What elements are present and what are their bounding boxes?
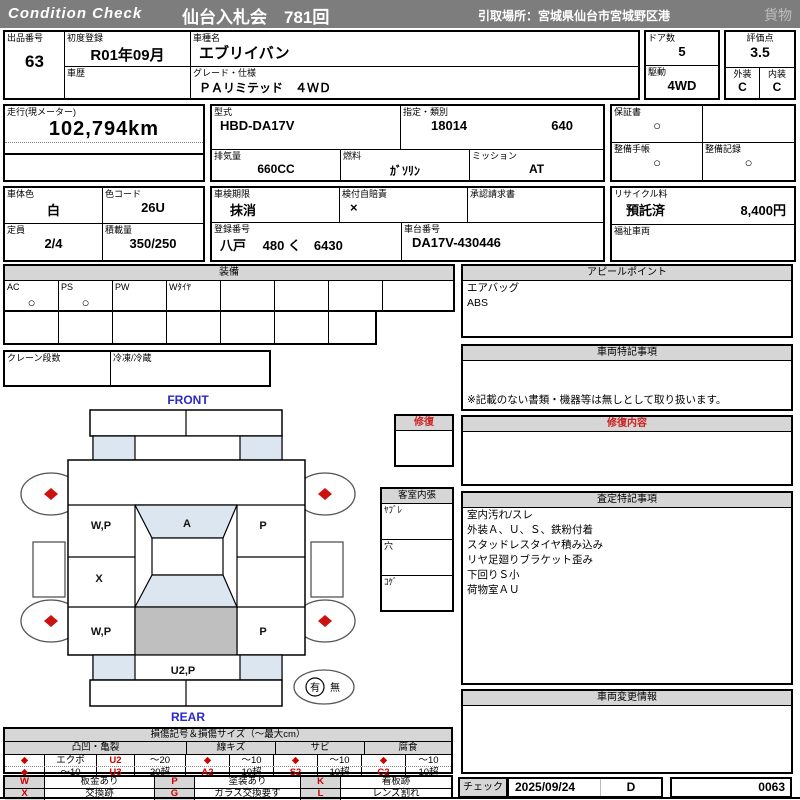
grade-label: グレード・仕様: [191, 67, 638, 79]
warranty-value: ○: [612, 118, 702, 133]
equipment-label: PW: [113, 281, 166, 293]
legend-symbol: ◆: [5, 755, 45, 766]
legend-size: ～10: [230, 755, 274, 766]
rear-right-corner-panel: [240, 655, 282, 680]
transmission-value: AT: [470, 162, 603, 176]
body-color-label: 車体色: [5, 188, 102, 200]
equipment-cell: [329, 281, 383, 311]
load-label: 積載量: [103, 224, 203, 236]
score-label: 評価点: [726, 32, 794, 44]
appeal-points-title: アピールポイント: [463, 266, 791, 281]
trim-row-label: ﾔﾌﾞﾚ: [382, 504, 452, 516]
insurance-value: ×: [340, 200, 467, 215]
roof: [152, 538, 223, 575]
maintenance-record-value: ○: [703, 155, 794, 170]
body-color-cell: 車体色 白: [5, 188, 103, 223]
history-label: 車歴: [65, 67, 190, 79]
legend-desc: エクボ: [45, 755, 97, 766]
code-desc: 看板跡: [341, 777, 451, 788]
equipment-cell-ac: AC○: [5, 281, 59, 311]
equipment-cell: [329, 312, 375, 343]
repair-mini-box: 修復: [394, 414, 454, 467]
spare-no-label: 無: [330, 681, 340, 694]
exterior-label: 外装: [726, 68, 759, 80]
type-number-value: 18014: [431, 118, 467, 133]
interior-value: C: [760, 80, 794, 94]
trim-row-burn: ｺｹﾞ: [382, 576, 452, 611]
transmission-label: ミッション: [470, 150, 603, 162]
pickup-location: 引取場所：宮城県仙台市宮城野区港: [478, 7, 670, 24]
mark-left-front-door: W,P: [91, 520, 111, 532]
rear-label: REAR: [171, 710, 205, 724]
page-bottom-rule: [0, 797, 800, 799]
welfare-label: 福祉車両: [612, 225, 794, 237]
displacement-value: 660CC: [212, 162, 340, 176]
check-number-value: 0063: [670, 777, 792, 798]
check-grade-value: D: [601, 779, 661, 796]
first-registration-value: R01年09月: [65, 44, 190, 65]
registration-number-value: 八戸 480 く 6430: [212, 235, 401, 254]
recycle-status-value: 預託済: [626, 200, 665, 219]
body-color-value: 白: [5, 200, 102, 219]
model-code-value: HBD-DA17V: [212, 118, 400, 133]
trim-row-label: ｺｹﾞ: [382, 576, 452, 588]
assessment-line: 下回りＳ小: [463, 568, 791, 583]
mark-rear-gate: U2,P: [171, 665, 195, 677]
displacement-label: 排気量: [212, 150, 340, 162]
damage-legend-table: 損傷記号＆損傷サイズ（～最大cm） 凸凹・亀裂 線キズ サビ 腐食 ◆ エクボ …: [3, 727, 453, 774]
assessment-notes-box: 査定特記事項 室内汚れ/スレ 外装Ａ、Ｕ、Ｓ、鉄粉付着 スタッドレスタイヤ積み込…: [461, 491, 793, 685]
load-cell: 積載量 350/250: [103, 224, 203, 261]
capacity-value: 2/4: [5, 236, 102, 251]
chassis-number-label: 車台番号: [402, 223, 603, 235]
color-code-value: 26U: [103, 200, 203, 215]
repair-mini-title: 修復: [396, 416, 452, 431]
code-key: W: [5, 777, 45, 788]
equipment-cell-wtire: Wﾀｲﾔ: [167, 281, 221, 311]
lot-number-cell: 出品番号 63: [5, 32, 65, 98]
approval-label: 承認請求書: [468, 188, 603, 200]
history-cell: 車歴: [65, 67, 190, 79]
mileage-value: 102,794km: [5, 118, 203, 141]
exterior-value: C: [726, 80, 759, 94]
equipment-label: Wﾀｲﾔ: [167, 281, 220, 293]
recycle-cell: リサイクル料 預託済 8,400円: [612, 188, 794, 225]
legend-code: U2: [97, 755, 135, 766]
fuel-value: ｶﾞｿﾘﾝ: [341, 162, 469, 179]
color-capacity-table: 車体色 白 色コード 26U 定員 2/4 積載量 350/250: [3, 186, 205, 262]
left-running-board: [33, 542, 65, 597]
mileage-label: 走行(現メーター): [5, 106, 203, 118]
doors-drive-table: ドア数 5 駆動 4WD: [644, 30, 720, 100]
model-code-label: 型式: [212, 106, 400, 118]
exterior-cell: 外装 C: [726, 68, 760, 99]
mileage-sub-box: [5, 153, 203, 183]
equipment-table: 装備 AC○ PS○ PW Wﾀｲﾔ: [3, 264, 455, 312]
assessment-line: 外装Ａ、Ｕ、Ｓ、鉄粉付着: [463, 523, 791, 538]
registration-table: 車検期限 抹消 検付自賠責 × 承認請求書 登録番号 八戸 480 く 6430…: [210, 186, 605, 262]
lot-number-label: 出品番号: [5, 32, 64, 44]
recycle-label: リサイクル料: [612, 188, 794, 200]
registration-number-label: 登録番号: [212, 223, 401, 235]
check-date-value: 2025/09/24: [509, 779, 601, 796]
equipment-row2: [3, 310, 377, 345]
assessment-line: リヤ足廻りブラケット歪み: [463, 553, 791, 568]
check-label-cell: チェック: [458, 777, 508, 798]
maintenance-book-cell: 整備手帳 ○: [612, 143, 703, 181]
blank-cell: [703, 106, 794, 142]
doors-cell: ドア数 5: [646, 32, 718, 66]
type-class-label: 指定・類別: [401, 106, 603, 118]
type-class-cell: 指定・類別 18014 640: [401, 106, 603, 149]
doors-value: 5: [646, 44, 718, 59]
damage-codes-table: W 板金あり P 塗装あり K 看板跡 X 交換跡 G ガラス交換要す L レン…: [3, 775, 453, 799]
front-right-corner-panel: [240, 436, 282, 460]
score-cell: 評価点 3.5: [726, 32, 794, 68]
equipment-label: AC: [5, 281, 58, 293]
code-desc: 塗装あり: [195, 777, 301, 788]
drive-value: 4WD: [646, 78, 718, 93]
equipment-value: ○: [5, 295, 58, 310]
rear-window: [135, 575, 237, 607]
equipment-cell: [5, 312, 59, 343]
first-registration-cell: 初度登録 R01年09月: [65, 32, 190, 67]
change-info-title: 車両変更情報: [463, 691, 791, 706]
interior-trim-table: 客室内張 ﾔﾌﾞﾚ 穴 ｺｹﾞ: [380, 487, 454, 612]
vehicle-notes-title: 車両特記事項: [463, 346, 791, 361]
chassis-number-value: DA17V-430446: [402, 235, 603, 250]
legend-group-corrosion: 腐食: [365, 742, 451, 755]
equipment-cell-ps: PS○: [59, 281, 113, 311]
assessment-line: スタッドレスタイヤ積み込み: [463, 538, 791, 553]
lot-model-table: 出品番号 63 初度登録 R01年09月 車歴 車種名 エブリイバン グレード・…: [3, 30, 640, 100]
doors-label: ドア数: [646, 32, 718, 44]
inspection-cell: 車検期限 抹消: [212, 188, 340, 222]
legend-group-scratch: 線キズ: [187, 742, 276, 755]
lot-number-value: 63: [5, 52, 64, 72]
capacity-cell: 定員 2/4: [5, 224, 103, 261]
fuel-cell: 燃料 ｶﾞｿﾘﾝ: [341, 150, 470, 181]
trim-row-label: 穴: [382, 540, 452, 552]
legend-group-rust: サビ: [276, 742, 365, 755]
equipment-label: PS: [59, 281, 112, 293]
legend-symbol: ◆: [274, 755, 318, 766]
trim-row-hole: 穴: [382, 540, 452, 576]
equipment-cell: [221, 312, 275, 343]
equipment-cell: [275, 312, 329, 343]
maintenance-record-label: 整備記録: [703, 143, 794, 155]
repair-details-box: 修復内容: [461, 415, 793, 486]
maintenance-book-label: 整備手帳: [612, 143, 702, 155]
spare-yes-label: 有: [310, 681, 320, 694]
equipment-cell: [383, 281, 436, 311]
capacity-label: 定員: [5, 224, 102, 236]
code-desc: 板金あり: [45, 777, 155, 788]
repair-details-title: 修復内容: [463, 417, 791, 432]
vehicle-notes-disclaimer: ※記載のない書類・機器等は無しとして取り扱います。: [467, 392, 726, 407]
warranty-cell: 保証書 ○: [612, 106, 703, 142]
model-name-value: エブリイバン: [191, 42, 638, 63]
equipment-cell: [113, 312, 167, 343]
front-left-corner-panel: [93, 436, 135, 460]
fridge-cell: 冷凍/冷蔵: [111, 352, 269, 385]
mark-left-slide-door: X: [95, 573, 103, 585]
assessment-line: 荷物室ＡＵ: [463, 583, 791, 598]
equipment-cell-pw: PW: [113, 281, 167, 311]
assessment-notes-title: 査定特記事項: [463, 493, 791, 508]
displacement-cell: 排気量 660CC: [212, 150, 341, 181]
interior-label: 内装: [760, 68, 794, 80]
brand-logo: Condition Check: [8, 5, 142, 22]
mileage-box: 走行(現メーター) 102,794km: [3, 104, 205, 182]
legend-group-dent: 凸凹・亀裂: [5, 742, 187, 755]
trim-row-tear: ﾔﾌﾞﾚ: [382, 504, 452, 540]
legend-size: ～10: [318, 755, 362, 766]
model-name-cell: 車種名 エブリイバン: [191, 32, 638, 67]
code-key: P: [155, 777, 195, 788]
fridge-label: 冷凍/冷蔵: [111, 352, 269, 364]
recycle-fee-value: 8,400円: [740, 200, 786, 219]
score-table: 評価点 3.5 外装 C 内装 C: [724, 30, 796, 100]
mark-left-rear-quarter: W,P: [91, 626, 111, 638]
right-running-board: [311, 542, 343, 597]
mark-right-rear-quarter: P: [259, 626, 266, 638]
front-label: FRONT: [167, 393, 209, 407]
mark-right-front-door: P: [259, 520, 266, 532]
color-code-cell: 色コード 26U: [103, 188, 203, 223]
assessment-line: 室内汚れ/スレ: [463, 508, 791, 523]
legend-symbol: ◆: [362, 755, 406, 766]
interior-trim-title: 客室内張: [382, 489, 452, 504]
recycle-table: リサイクル料 預託済 8,400円 福祉車両: [610, 186, 796, 262]
score-value: 3.5: [726, 44, 794, 60]
change-info-box: 車両変更情報: [461, 689, 793, 774]
fuel-label: 燃料: [341, 150, 469, 162]
equipment-cell: [59, 312, 113, 343]
title-bar: Condition Check 仙台入札会 781回 引取場所：宮城県仙台市宮城…: [0, 0, 800, 28]
maintenance-book-value: ○: [612, 155, 702, 170]
documents-table: 保証書 ○ 整備手帳 ○ 整備記録 ○: [610, 104, 796, 182]
equipment-cell: [275, 281, 329, 311]
equipment-value: ○: [59, 295, 112, 310]
vehicle-notes-box: 車両特記事項 ※記載のない書類・機器等は無しとして取り扱います。: [461, 344, 793, 411]
interior-cell: 内装 C: [760, 68, 794, 99]
legend-size: ～20: [135, 755, 186, 766]
equipment-title: 装備: [5, 266, 453, 281]
appeal-line: エアバッグ: [463, 281, 791, 296]
insurance-label: 検付自賠責: [340, 188, 467, 200]
legend-size: ～10: [406, 755, 451, 766]
color-code-label: 色コード: [103, 188, 203, 200]
check-date-grade-box: 2025/09/24 D: [507, 777, 663, 798]
drive-cell: 駆動 4WD: [646, 66, 718, 93]
mark-windshield: A: [183, 518, 191, 530]
grade-cell: グレード・仕様 ＰＡリミテッド ４ＷＤ: [191, 67, 638, 96]
warranty-label: 保証書: [612, 106, 702, 118]
crane-label: クレーン段数: [5, 352, 110, 364]
code-key: K: [301, 777, 341, 788]
engine-table: 型式 HBD-DA17V 指定・類別 18014 640 排気量 660CC 燃…: [210, 104, 605, 182]
inspection-value: 抹消: [212, 200, 339, 219]
first-registration-label: 初度登録: [65, 32, 190, 44]
drive-label: 駆動: [646, 66, 718, 78]
welfare-cell: 福祉車両: [612, 225, 794, 237]
maintenance-record-cell: 整備記録 ○: [703, 143, 794, 181]
crane-fridge-table: クレーン段数 冷凍/冷蔵: [3, 350, 271, 387]
appeal-line: ABS: [463, 296, 791, 311]
equipment-cell: [221, 281, 275, 311]
insurance-cell: 検付自賠責 ×: [340, 188, 468, 222]
auction-title: 仙台入札会 781回: [182, 3, 329, 28]
inspection-label: 車検期限: [212, 188, 339, 200]
appeal-points-box: アピールポイント エアバッグ ABS: [461, 264, 793, 338]
transmission-cell: ミッション AT: [470, 150, 603, 181]
approval-cell: 承認請求書: [468, 188, 603, 222]
registration-number-cell: 登録番号 八戸 480 く 6430: [212, 223, 402, 261]
grade-value: ＰＡリミテッド ４ＷＤ: [191, 79, 638, 96]
model-code-cell: 型式 HBD-DA17V: [212, 106, 401, 149]
rear-left-corner-panel: [93, 655, 135, 680]
load-value: 350/250: [103, 236, 203, 251]
chassis-number-cell: 車台番号 DA17V-430446: [402, 223, 603, 261]
equipment-cell: [167, 312, 221, 343]
vehicle-category: 貨物: [764, 5, 792, 25]
damage-legend-title: 損傷記号＆損傷サイズ（～最大cm）: [5, 729, 451, 742]
class-number-value: 640: [551, 118, 573, 133]
cargo-area: [135, 607, 237, 655]
crane-cell: クレーン段数: [5, 352, 111, 385]
legend-symbol: ◆: [186, 755, 230, 766]
vehicle-damage-diagram: FRONT W,P A P X W,P P U2,P: [3, 390, 373, 725]
